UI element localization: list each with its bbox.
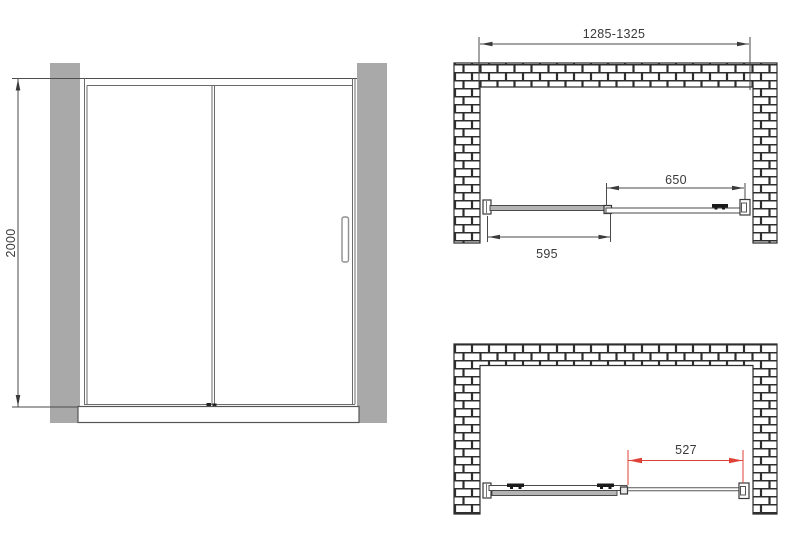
shower-door-technical-drawing: 2000 1285-1325 [0,0,800,534]
overall-width-label: 1285-1325 [583,27,645,41]
fixed-panel-label: 595 [536,247,558,261]
sliding-panel-label: 650 [665,173,687,187]
wall-post-left [50,63,80,423]
fixed-panel-plan [490,206,608,211]
bottom-rail [78,407,359,423]
height-dimension-label: 2000 [4,228,18,257]
wall-post-right [357,63,387,423]
panel-end-hook [621,487,628,494]
door-handle [342,217,349,262]
fixed-panel-open [492,491,617,496]
opening-dimension-label: 527 [675,443,697,457]
sliding-panel-plan [606,208,740,213]
